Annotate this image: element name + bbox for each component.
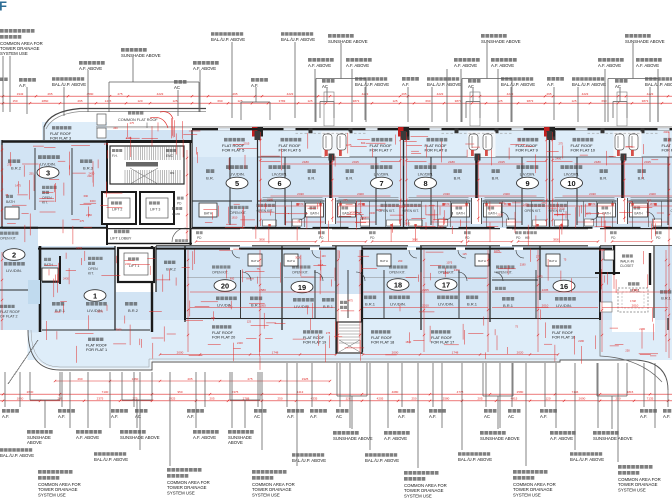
svg-text:1475: 1475 [523,203,529,207]
svg-text:3873: 3873 [353,99,360,103]
svg-text:2205: 2205 [422,288,429,292]
svg-text:FOR FLAT 6: FOR FLAT 6 [279,148,302,153]
svg-text:6: 6 [277,179,281,188]
svg-text:2430: 2430 [125,262,131,266]
svg-text:OPEN KIT.: OPEN KIT. [0,237,16,241]
svg-text:1475: 1475 [627,200,633,204]
svg-text:OPEN KIT.: OPEN KIT. [292,270,308,274]
svg-text:2430: 2430 [404,221,410,225]
svg-text:BATH: BATH [488,212,497,216]
svg-text:200: 200 [398,259,403,263]
svg-text:16: 16 [560,282,568,291]
svg-text:4223: 4223 [157,92,164,96]
svg-text:1475: 1475 [347,299,353,303]
svg-text:690: 690 [425,99,430,103]
svg-text:4223: 4223 [437,92,444,96]
svg-text:W.MR: W.MR [172,212,181,216]
svg-text:CLOSET: CLOSET [620,264,634,268]
svg-text:690: 690 [601,99,606,103]
svg-text:275: 275 [559,141,564,145]
svg-text:275: 275 [104,142,109,146]
svg-text:690: 690 [361,141,366,145]
svg-text:A.F. ABOVE: A.F. ABOVE [79,66,102,71]
svg-text:295: 295 [401,92,406,96]
svg-text:FOR FLAT 5: FOR FLAT 5 [222,148,245,153]
svg-text:295: 295 [232,92,237,96]
svg-text:2430: 2430 [63,276,69,280]
svg-text:OPEN KIT.: OPEN KIT. [389,270,405,274]
svg-text:OPEN KIT.: OPEN KIT. [230,211,246,215]
svg-text:A.F.: A.F. [640,414,647,419]
svg-text:250: 250 [625,348,630,352]
svg-text:BATH: BATH [478,259,486,263]
svg-text:FOR FLAT 18: FOR FLAT 18 [371,340,394,344]
svg-text:OF FLAT 2: OF FLAT 2 [0,315,17,319]
svg-text:2020: 2020 [517,351,524,355]
svg-text:125: 125 [247,320,252,324]
svg-text:FOR FLAT 20: FOR FLAT 20 [212,335,235,339]
svg-text:2000: 2000 [392,351,399,355]
svg-text:AC: AC [174,85,180,90]
svg-text:B.R.: B.R. [600,176,608,181]
svg-text:2000: 2000 [177,351,184,355]
svg-text:4778: 4778 [457,390,464,394]
svg-text:LIFT 2: LIFT 2 [112,208,122,212]
svg-text:2180: 2180 [86,213,92,217]
svg-text:690: 690 [217,99,222,103]
svg-text:BATH: BATH [287,259,295,263]
svg-text:1475: 1475 [15,183,21,187]
svg-text:2580: 2580 [517,390,524,394]
svg-text:BAL./U.P. ABOVE: BAL./U.P. ABOVE [94,457,128,462]
svg-text:SUNSHADE ABOVE: SUNSHADE ABOVE [593,436,633,441]
svg-text:LIV./DIN.: LIV./DIN. [438,302,454,307]
svg-text:SYSTEM USE: SYSTEM USE [404,493,432,498]
svg-text:OPEN KIT.: OPEN KIT. [525,209,541,213]
svg-text:2375: 2375 [97,397,104,401]
svg-text:2180: 2180 [639,327,645,331]
svg-text:DN: DN [170,171,174,175]
svg-text:BATH: BATH [456,212,465,216]
svg-text:8: 8 [423,179,427,188]
svg-text:2430: 2430 [237,341,243,345]
svg-text:290: 290 [77,377,82,381]
svg-text:2180: 2180 [267,198,273,202]
svg-text:SYSTEM USE: SYSTEM USE [38,492,66,497]
svg-text:150: 150 [12,99,17,103]
svg-text:B.R.2: B.R.2 [128,308,139,313]
svg-text:2580: 2580 [443,397,450,401]
svg-text:250: 250 [29,172,34,176]
svg-text:FLAT ROOF: FLAT ROOF [431,336,453,340]
svg-text:690: 690 [84,194,89,198]
svg-text:LIV./DIN.: LIV./DIN. [374,171,390,176]
svg-text:125: 125 [307,99,312,103]
svg-text:200: 200 [211,316,216,320]
svg-text:275: 275 [541,201,546,205]
svg-text:A.F.: A.F. [58,414,65,419]
svg-text:2400: 2400 [76,246,82,250]
svg-text:2180: 2180 [497,212,503,216]
svg-text:250: 250 [411,397,416,401]
svg-text:SYSTEM USE: SYSTEM USE [513,492,541,497]
svg-text:F.H.: F.H. [112,154,118,158]
svg-text:A.F. ABOVE: A.F. ABOVE [598,63,621,68]
svg-text:A.F. ABOVE: A.F. ABOVE [491,63,514,68]
svg-text:A.F.: A.F. [547,82,554,87]
svg-text:10: 10 [567,179,575,188]
svg-text:2055: 2055 [259,304,266,308]
svg-text:3800: 3800 [553,238,559,242]
svg-text:1943: 1943 [17,92,24,96]
svg-text:BAL./U.P. ABOVE: BAL./U.P. ABOVE [211,37,245,42]
svg-text:2430: 2430 [443,192,450,196]
svg-text:BATH: BATH [310,212,319,216]
svg-text:275: 275 [130,121,135,125]
svg-text:2690: 2690 [579,397,586,401]
svg-text:2015: 2015 [55,310,61,314]
svg-text:5: 5 [235,179,239,188]
svg-text:2180: 2180 [594,160,601,164]
svg-text:275: 275 [247,377,252,381]
svg-text:LIV./DIN.: LIV./DIN. [418,171,434,176]
svg-text:125: 125 [462,252,467,256]
svg-text:A.F.: A.F. [111,414,118,419]
svg-text:3: 3 [46,168,50,177]
svg-text:A.F. ABOVE: A.F. ABOVE [76,435,99,440]
svg-text:1075: 1075 [446,261,452,265]
svg-text:20: 20 [221,281,229,290]
svg-text:2180: 2180 [399,204,405,208]
svg-text:FOR FLAT 19: FOR FLAT 19 [303,340,326,344]
svg-text:BAL./U.P. ABOVE: BAL./U.P. ABOVE [0,453,34,458]
svg-text:FOR FLAT 8: FOR FLAT 8 [425,148,448,153]
svg-text:120: 120 [137,99,142,103]
svg-text:A.F. ABOVE: A.F. ABOVE [193,435,216,440]
svg-text:9: 9 [525,179,529,188]
svg-text:A.F.: A.F. [2,414,9,419]
svg-text:125: 125 [392,99,397,103]
svg-text:A.F.: A.F. [540,414,547,419]
svg-text:BAL./U.P. ABOVE: BAL./U.P. ABOVE [281,37,315,42]
svg-text:PD: PD [319,236,324,240]
svg-text:950: 950 [177,390,182,394]
svg-text:2205: 2205 [542,288,549,292]
svg-text:LIV./DIN.: LIV./DIN. [294,304,310,309]
svg-text:1075: 1075 [494,249,500,253]
svg-text:A.F.: A.F. [310,414,317,419]
svg-text:125: 125 [571,99,576,103]
svg-text:4223: 4223 [507,92,514,96]
svg-text:125: 125 [172,99,177,103]
svg-text:BATH: BATH [44,263,53,267]
svg-text:FOR FLAT 9: FOR FLAT 9 [516,148,539,153]
svg-text:19: 19 [298,283,306,292]
svg-text:2430: 2430 [89,172,95,176]
svg-text:2400: 2400 [349,211,355,215]
svg-text:LIV./DIN.: LIV./DIN. [229,171,245,176]
svg-text:SUNSHADE ABOVE: SUNSHADE ABOVE [625,39,665,44]
svg-text:ABOVE: ABOVE [228,440,243,445]
svg-text:SUNSHADE ABOVE: SUNSHADE ABOVE [480,436,520,441]
svg-text:FOR FLAT 3: FOR FLAT 3 [50,136,71,140]
svg-text:1870: 1870 [650,202,656,206]
svg-text:BAL./U.P. ABOVE: BAL./U.P. ABOVE [52,82,86,87]
svg-text:275: 275 [117,92,122,96]
svg-text:FOR FLAT 1: FOR FLAT 1 [86,348,107,352]
svg-text:BATH: BATH [204,212,213,216]
svg-text:HR: HR [525,236,530,240]
svg-text:SUNSHADE ABOVE: SUNSHADE ABOVE [328,39,368,44]
svg-text:A.F.: A.F. [251,83,258,88]
svg-text:275: 275 [80,219,85,223]
svg-text:OPEN: OPEN [42,196,52,200]
svg-text:295: 295 [77,99,82,103]
svg-text:FLAT ROOF: FLAT ROOF [371,336,393,340]
svg-text:1748: 1748 [272,351,279,355]
svg-text:3000: 3000 [116,327,122,331]
svg-text:120: 120 [545,397,550,401]
svg-text:A.F. ABOVE: A.F. ABOVE [308,63,331,68]
svg-text:4413: 4413 [297,390,304,394]
svg-text:2010: 2010 [422,304,429,308]
svg-text:A.F.: A.F. [287,414,294,419]
svg-text:3800: 3800 [259,238,265,242]
svg-text:LIV./DIN.: LIV./DIN. [6,268,22,273]
svg-text:2400: 2400 [369,211,375,215]
svg-text:A.F.: A.F. [398,414,405,419]
svg-text:275: 275 [7,163,12,167]
svg-text:2400: 2400 [649,192,656,196]
svg-text:2580: 2580 [632,288,639,292]
svg-text:SYSTEM USE: SYSTEM USE [618,487,646,492]
svg-text:F: F [0,0,7,14]
svg-text:1: 1 [93,291,97,300]
svg-text:OPEN KIT.: OPEN KIT. [403,209,419,213]
svg-text:B.R.1: B.R.1 [467,302,478,307]
svg-text:LIV./DIN.: LIV./DIN. [564,171,580,176]
svg-text:2400: 2400 [357,192,364,196]
svg-text:BATH: BATH [549,259,557,263]
svg-text:4223: 4223 [287,92,294,96]
svg-text:205: 205 [477,397,482,401]
svg-text:1925: 1925 [302,377,309,381]
svg-text:PD: PD [465,236,470,240]
svg-text:200: 200 [113,126,118,130]
svg-text:BAL./U.P. ABOVE: BAL./U.P. ABOVE [458,457,492,462]
svg-text:LIV./DIN.: LIV./DIN. [390,302,406,307]
svg-text:BAL./U.P. ABOVE: BAL./U.P. ABOVE [570,457,604,462]
svg-text:1075: 1075 [97,310,103,314]
svg-text:A.F. ABOVE: A.F. ABOVE [454,63,477,68]
svg-text:3873: 3873 [527,99,534,103]
svg-text:A.F.: A.F. [402,82,409,87]
svg-text:A.F.: A.F. [429,414,436,419]
svg-text:B.R.: B.R. [638,176,646,181]
svg-text:7135: 7135 [647,397,654,401]
svg-text:3000: 3000 [559,206,565,210]
svg-text:LIV./DIN.: LIV./DIN. [520,171,536,176]
svg-text:1415: 1415 [105,99,112,103]
svg-text:PD: PD [611,236,616,240]
svg-text:BAL./U.P. ABOVE: BAL./U.P. ABOVE [365,458,399,463]
svg-text:205: 205 [209,397,214,401]
svg-text:2015: 2015 [244,142,250,146]
svg-text:4205: 4205 [377,397,384,401]
svg-text:FLAT ROOF: FLAT ROOF [86,343,108,347]
svg-text:2400: 2400 [503,192,510,196]
svg-text:LIV./DIN.: LIV./DIN. [272,171,288,176]
svg-text:4815: 4815 [627,390,634,394]
svg-text:1748: 1748 [452,351,459,355]
svg-text:2010: 2010 [632,304,639,308]
svg-text:275: 275 [536,255,541,259]
svg-text:BAL./U.P. ABOVE: BAL./U.P. ABOVE [355,82,389,87]
svg-text:3000: 3000 [90,199,96,203]
svg-text:OPEN KIT.: OPEN KIT. [212,270,228,274]
svg-text:2: 2 [12,250,16,259]
svg-text:PD: PD [516,236,521,240]
svg-text:B.R.: B.R. [492,176,500,181]
svg-text:1748: 1748 [630,299,636,303]
svg-text:17: 17 [442,280,450,289]
svg-text:275: 275 [343,198,348,202]
svg-text:FOR FLAT 7: FOR FLAT 7 [370,148,393,153]
svg-text:FOR FLAT 11: FOR FLAT 11 [662,148,672,153]
svg-text:1810: 1810 [232,216,238,220]
svg-text:2180: 2180 [448,160,455,164]
svg-text:OPEN KIT.: OPEN KIT. [496,270,512,274]
svg-text:1810: 1810 [405,340,411,344]
svg-text:B.R.3: B.R.3 [83,165,94,170]
svg-text:3000: 3000 [295,256,301,260]
svg-text:1870: 1870 [444,202,450,206]
svg-text:FOR FLAT 16: FOR FLAT 16 [552,335,575,339]
svg-text:B.R.: B.R. [454,176,462,181]
svg-text:BAL./U.P. ABOVE: BAL./U.P. ABOVE [572,82,606,87]
svg-text:295: 295 [546,92,551,96]
svg-text:4080: 4080 [392,390,399,394]
svg-text:2860: 2860 [42,99,49,103]
svg-text:B.R.1: B.R.1 [323,304,334,309]
svg-text:B.R.: B.R. [206,176,214,181]
svg-text:125: 125 [237,99,242,103]
svg-text:3000: 3000 [438,224,444,228]
svg-text:PD: PD [370,236,375,240]
svg-text:A.F. ABOVE: A.F. ABOVE [384,436,407,441]
svg-text:690: 690 [647,198,652,202]
svg-text:BATH: BATH [6,200,15,204]
svg-text:A.F.: A.F. [663,414,670,419]
svg-text:A.F. ABOVE: A.F. ABOVE [550,436,573,441]
svg-text:B.R.2: B.R.2 [11,165,22,170]
svg-text:FLAT ROOF: FLAT ROOF [552,331,574,335]
svg-text:BATH: BATH [602,212,611,216]
svg-text:7100: 7100 [102,390,109,394]
svg-text:PD: PD [177,202,182,206]
svg-text:BATH: BATH [380,259,388,263]
svg-text:4223: 4223 [582,92,589,96]
svg-text:1870: 1870 [590,202,596,206]
svg-text:AC: AC [484,414,490,419]
svg-text:B.R.1: B.R.1 [365,302,376,307]
svg-text:2180: 2180 [578,339,584,343]
svg-text:LIV./DIN.: LIV./DIN. [40,161,56,166]
svg-text:2015: 2015 [499,201,505,205]
svg-text:1810: 1810 [360,216,366,220]
svg-text:SYSTEM USE: SYSTEM USE [252,492,280,497]
svg-text:2580: 2580 [259,288,266,292]
svg-text:3000: 3000 [376,208,382,212]
svg-text:EMC: EMC [166,154,174,158]
svg-text:FOR FLAT 10: FOR FLAT 10 [571,148,596,153]
svg-text:1475: 1475 [126,136,132,140]
svg-text:FLAT ROOF: FLAT ROOF [0,310,21,314]
svg-text:A.F.: A.F. [187,414,194,419]
svg-text:2180: 2180 [520,262,526,266]
svg-text:250: 250 [277,397,282,401]
svg-text:2180: 2180 [302,160,309,164]
svg-text:PD: PD [197,236,202,240]
svg-text:A.F. ABOVE: A.F. ABOVE [636,63,659,68]
svg-text:FLAT ROOF: FLAT ROOF [212,331,234,335]
svg-text:2015: 2015 [644,160,651,164]
svg-text:B.R.: B.R. [346,176,354,181]
svg-text:AC: AC [508,414,514,419]
svg-text:BATH: BATH [634,212,643,216]
svg-text:OPEN: OPEN [88,267,98,271]
svg-text:ABOVE: ABOVE [27,440,42,445]
svg-text:FLAT ROOF: FLAT ROOF [303,336,325,340]
svg-text:A.F.: A.F. [19,83,26,88]
svg-text:FOR FLAT 17: FOR FLAT 17 [431,340,454,344]
svg-text:LIFT LOBBY: LIFT LOBBY [110,236,132,240]
svg-text:A.F. ABOVE: A.F. ABOVE [193,66,216,71]
svg-text:BAL./U.P. ABOVE: BAL./U.P. ABOVE [427,82,461,87]
svg-text:275: 275 [326,331,331,335]
svg-text:100: 100 [321,254,326,258]
svg-text:2375: 2375 [232,390,239,394]
svg-text:2430: 2430 [297,192,304,196]
svg-text:SYSTEM USE: SYSTEM USE [0,51,28,56]
svg-text:3873: 3873 [642,99,649,103]
svg-text:SUNSHADE ABOVE: SUNSHADE ABOVE [121,53,161,58]
svg-text:AC: AC [336,414,342,419]
svg-text:2400: 2400 [454,268,460,272]
svg-text:2400: 2400 [555,157,561,161]
svg-text:2015: 2015 [352,160,359,164]
svg-text:PD: PD [656,236,661,240]
svg-text:LIFT 3: LIFT 3 [150,208,160,212]
svg-text:COMMON FLAT ROOF: COMMON FLAT ROOF [118,118,158,122]
svg-text:FLAT ROOF: FLAT ROOF [50,132,72,136]
svg-text:690: 690 [230,276,235,280]
svg-text:265: 265 [47,92,52,96]
svg-text:2430: 2430 [443,271,449,275]
svg-text:SYSTEM USE: SYSTEM USE [167,490,195,495]
svg-text:2010: 2010 [542,304,549,308]
svg-text:BAL./U.P. ABOVE: BAL./U.P. ABOVE [501,82,535,87]
svg-text:2015: 2015 [498,160,505,164]
svg-text:205: 205 [187,377,192,381]
svg-text:7: 7 [379,179,383,188]
svg-text:BATH: BATH [251,259,259,263]
svg-text:AC: AC [254,414,260,419]
svg-text:3783: 3783 [279,99,286,103]
svg-text:SUNSHADE ABOVE: SUNSHADE ABOVE [333,436,373,441]
svg-text:KIT.: KIT. [88,272,94,276]
svg-text:1870: 1870 [298,202,304,206]
